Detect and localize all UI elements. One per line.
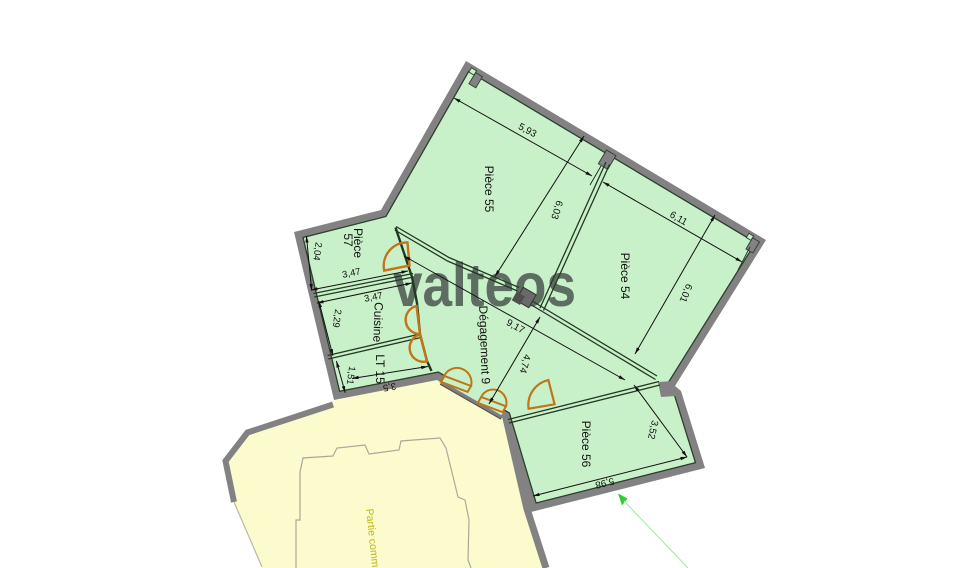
svg-text:Pièce 55: Pièce 55	[482, 166, 496, 213]
svg-text:Pièce 56: Pièce 56	[579, 421, 593, 468]
svg-text:57: 57	[341, 233, 355, 247]
svg-text:Pièce 54: Pièce 54	[618, 253, 632, 300]
svg-text:Dégagement 9: Dégagement 9	[476, 305, 493, 384]
svg-text:LT 15: LT 15	[373, 354, 387, 384]
svg-text:Cuisine: Cuisine	[370, 302, 385, 343]
